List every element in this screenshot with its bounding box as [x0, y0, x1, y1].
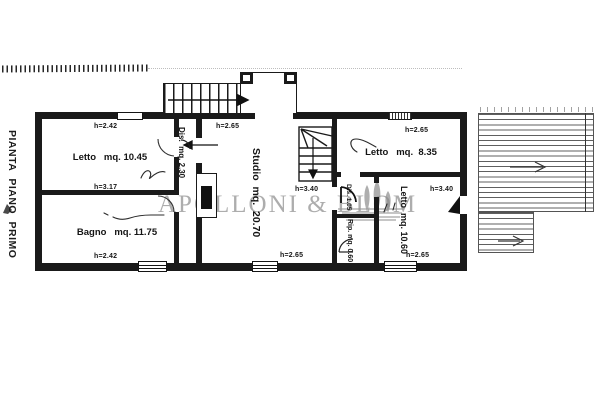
landing-post-right — [284, 72, 297, 84]
dim-letto1-bottom: h=3.17 — [94, 184, 117, 191]
dim-letto1-top: h=2.42 — [94, 123, 117, 130]
hatched-border-line — [2, 64, 148, 72]
room-label-letto3: Letto mq. 10.60 — [399, 186, 409, 256]
dim-letto2-top: h=2.65 — [405, 127, 428, 134]
room-label-letto2: Letto mq. 8.35 — [347, 147, 455, 158]
dim-studio-bottom: h=2.65 — [280, 252, 303, 259]
terrace-inner-edge — [585, 113, 586, 212]
terrace-upper — [478, 113, 594, 212]
left-wall — [35, 112, 42, 271]
dim-letto3-bottom: h=2.65 — [406, 252, 429, 259]
wall-letto2-bottom-1 — [337, 172, 341, 177]
window-bottom-studio — [252, 261, 278, 272]
top-wall-right — [293, 112, 467, 119]
dim-stairs: h=3.40 — [295, 186, 318, 193]
right-wall-upper — [460, 112, 467, 196]
plan-title: PIANTA PIANO PRIMO — [6, 130, 18, 254]
window-top-letto2-hatched — [388, 112, 412, 120]
external-staircase — [163, 83, 248, 114]
wall-dis-rip-divider — [337, 214, 374, 218]
window-bottom-letto3 — [384, 261, 417, 272]
terrace-lower — [478, 212, 534, 253]
room-label-bagno: Bagno mq. 11.75 — [62, 227, 172, 238]
dim-bagno-bottom: h=2.42 — [94, 253, 117, 260]
flue-core — [201, 186, 212, 209]
room-label-studio: Studio mq. 20.70 — [250, 148, 262, 252]
wall-disrip-right-2 — [374, 197, 379, 263]
room-label-dis2: Dis. 1.05 — [345, 184, 352, 214]
dim-studio-top: h=2.65 — [216, 123, 239, 130]
landing-post-left — [240, 72, 253, 84]
dim-letto3-top: h=3.40 — [430, 186, 453, 193]
room-label-letto1: Letto mq. 10.45 — [58, 152, 162, 163]
wall-disrip-right-1 — [374, 177, 379, 183]
floor-plan-scan: APOLLONI & BLOM PIANTA PIANO PRIMO — [0, 0, 600, 400]
right-wall-lower — [460, 214, 467, 271]
window-top-letto1 — [117, 112, 143, 120]
wall-studio-left-1 — [196, 118, 202, 138]
room-label-dis1: Dis. mq. 2.30 — [177, 127, 186, 197]
window-bottom-bagno — [138, 261, 167, 272]
wall-letti-right-3 — [174, 212, 179, 263]
room-label-rip: Rip. mq. 0.60 — [346, 219, 353, 261]
